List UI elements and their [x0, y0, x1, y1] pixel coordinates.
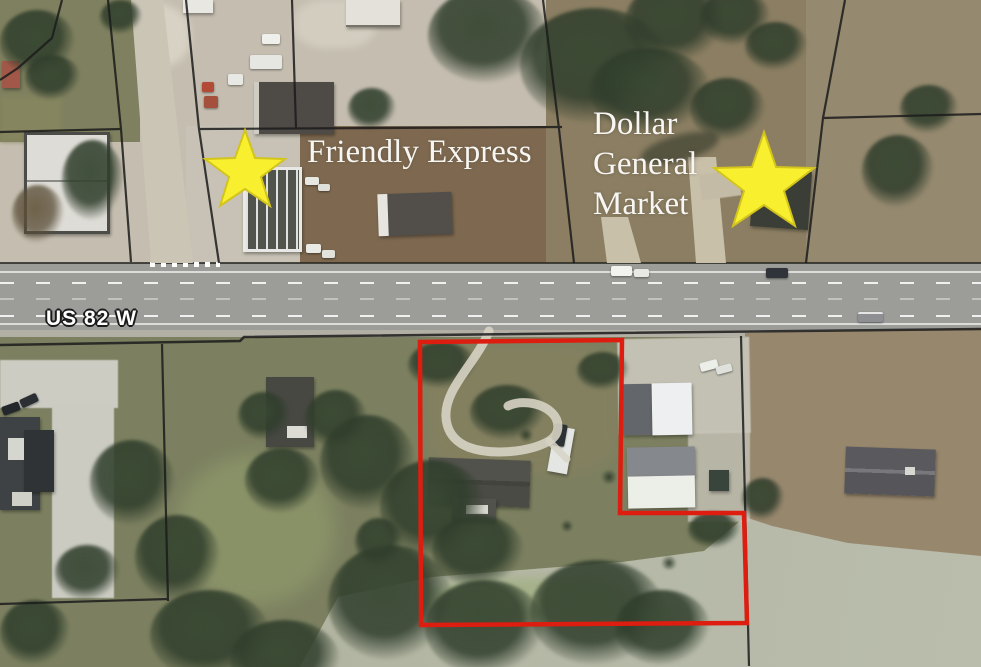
parcel-line	[806, 0, 845, 263]
tree	[688, 512, 740, 548]
metal-building-2-white	[628, 475, 696, 508]
dollar-general-label-line3: Market	[593, 184, 697, 224]
tree	[425, 580, 545, 667]
red-container	[204, 96, 218, 108]
tree	[12, 185, 64, 243]
edge-line	[0, 271, 981, 273]
parked-car	[318, 184, 330, 191]
shrub	[518, 428, 534, 442]
tree	[862, 135, 934, 207]
gas-canopy	[243, 167, 302, 252]
tree	[348, 88, 396, 130]
tree	[90, 440, 175, 525]
metal-building-white-half	[652, 383, 693, 436]
house-west-white	[8, 438, 24, 460]
house-mid-porch	[287, 426, 307, 438]
car-on-road-gray	[858, 312, 883, 322]
tree	[355, 518, 403, 566]
tree	[470, 385, 545, 440]
tree	[135, 515, 220, 600]
car-on-road-dark	[766, 268, 788, 278]
tree	[55, 545, 120, 600]
house-east-detail	[905, 467, 915, 475]
lane-line	[0, 282, 981, 284]
house-west-wing	[24, 430, 54, 492]
friendly-express-label: Friendly Express	[307, 134, 532, 171]
aerial-parcel-map: Friendly Express Dollar General Market U…	[0, 0, 981, 667]
car-on-road-white	[611, 266, 632, 276]
parked-trailer	[250, 55, 282, 69]
friendly-express-store	[254, 82, 334, 134]
highway-shoulder	[0, 330, 981, 339]
tree	[408, 342, 476, 388]
parcel-line	[186, 0, 219, 263]
house-roof	[377, 192, 452, 237]
tree	[25, 55, 80, 100]
car-on-road-white	[634, 269, 649, 277]
parked-truck	[262, 34, 280, 44]
building-roof	[183, 0, 213, 13]
tree	[238, 392, 290, 440]
dollar-general-building	[750, 168, 812, 230]
dg-parking-patch	[698, 169, 741, 200]
dollar-general-label: Dollar General Market	[593, 104, 697, 224]
tree	[615, 590, 710, 665]
highway-surface	[0, 263, 981, 330]
tree	[305, 390, 367, 448]
shrub	[600, 470, 618, 484]
car-at-pumps	[322, 250, 335, 258]
center-lane-line	[0, 298, 981, 300]
highway-top-edge	[0, 262, 981, 264]
dollar-general-label-line2: General	[593, 144, 697, 184]
parked-van	[228, 74, 243, 85]
shrub	[560, 520, 574, 532]
highway-name-label: US 82 W	[46, 307, 137, 331]
parked-car	[305, 177, 319, 185]
lane-line	[0, 315, 981, 317]
dollar-general-label-line1: Dollar	[593, 104, 697, 144]
car-at-pumps	[306, 244, 321, 253]
building-roof	[346, 0, 400, 27]
red-truck	[202, 82, 214, 92]
metal-building-2-roof	[627, 446, 696, 477]
tree	[900, 85, 958, 133]
tree	[742, 478, 784, 520]
metal-building-dark-half	[622, 384, 655, 436]
house-west-white	[12, 492, 32, 506]
tree	[100, 0, 142, 34]
house-roof-east	[844, 446, 936, 496]
edge-line	[0, 323, 981, 325]
tree	[245, 448, 320, 513]
right-parcel-ground	[806, 0, 981, 266]
tree	[0, 600, 70, 665]
tree	[62, 140, 124, 220]
small-shed	[709, 470, 729, 491]
tree	[577, 352, 629, 390]
parcel-line	[108, 0, 131, 262]
shrub	[660, 556, 678, 570]
